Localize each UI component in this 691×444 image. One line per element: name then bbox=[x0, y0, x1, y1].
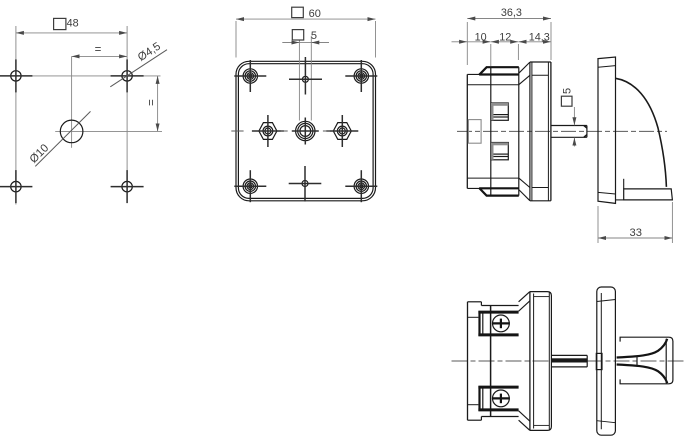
svg-text:12: 12 bbox=[499, 32, 511, 44]
svg-text:48: 48 bbox=[67, 18, 79, 30]
svg-text:33: 33 bbox=[629, 227, 641, 239]
svg-text:36,3: 36,3 bbox=[501, 7, 522, 19]
svg-text:10: 10 bbox=[475, 32, 487, 44]
svg-text:5: 5 bbox=[561, 88, 573, 94]
svg-text:5: 5 bbox=[311, 30, 317, 42]
svg-text:60: 60 bbox=[309, 8, 321, 20]
svg-text:14,3: 14,3 bbox=[529, 32, 550, 44]
svg-text:=: = bbox=[95, 44, 102, 56]
svg-text:=: = bbox=[146, 99, 158, 106]
